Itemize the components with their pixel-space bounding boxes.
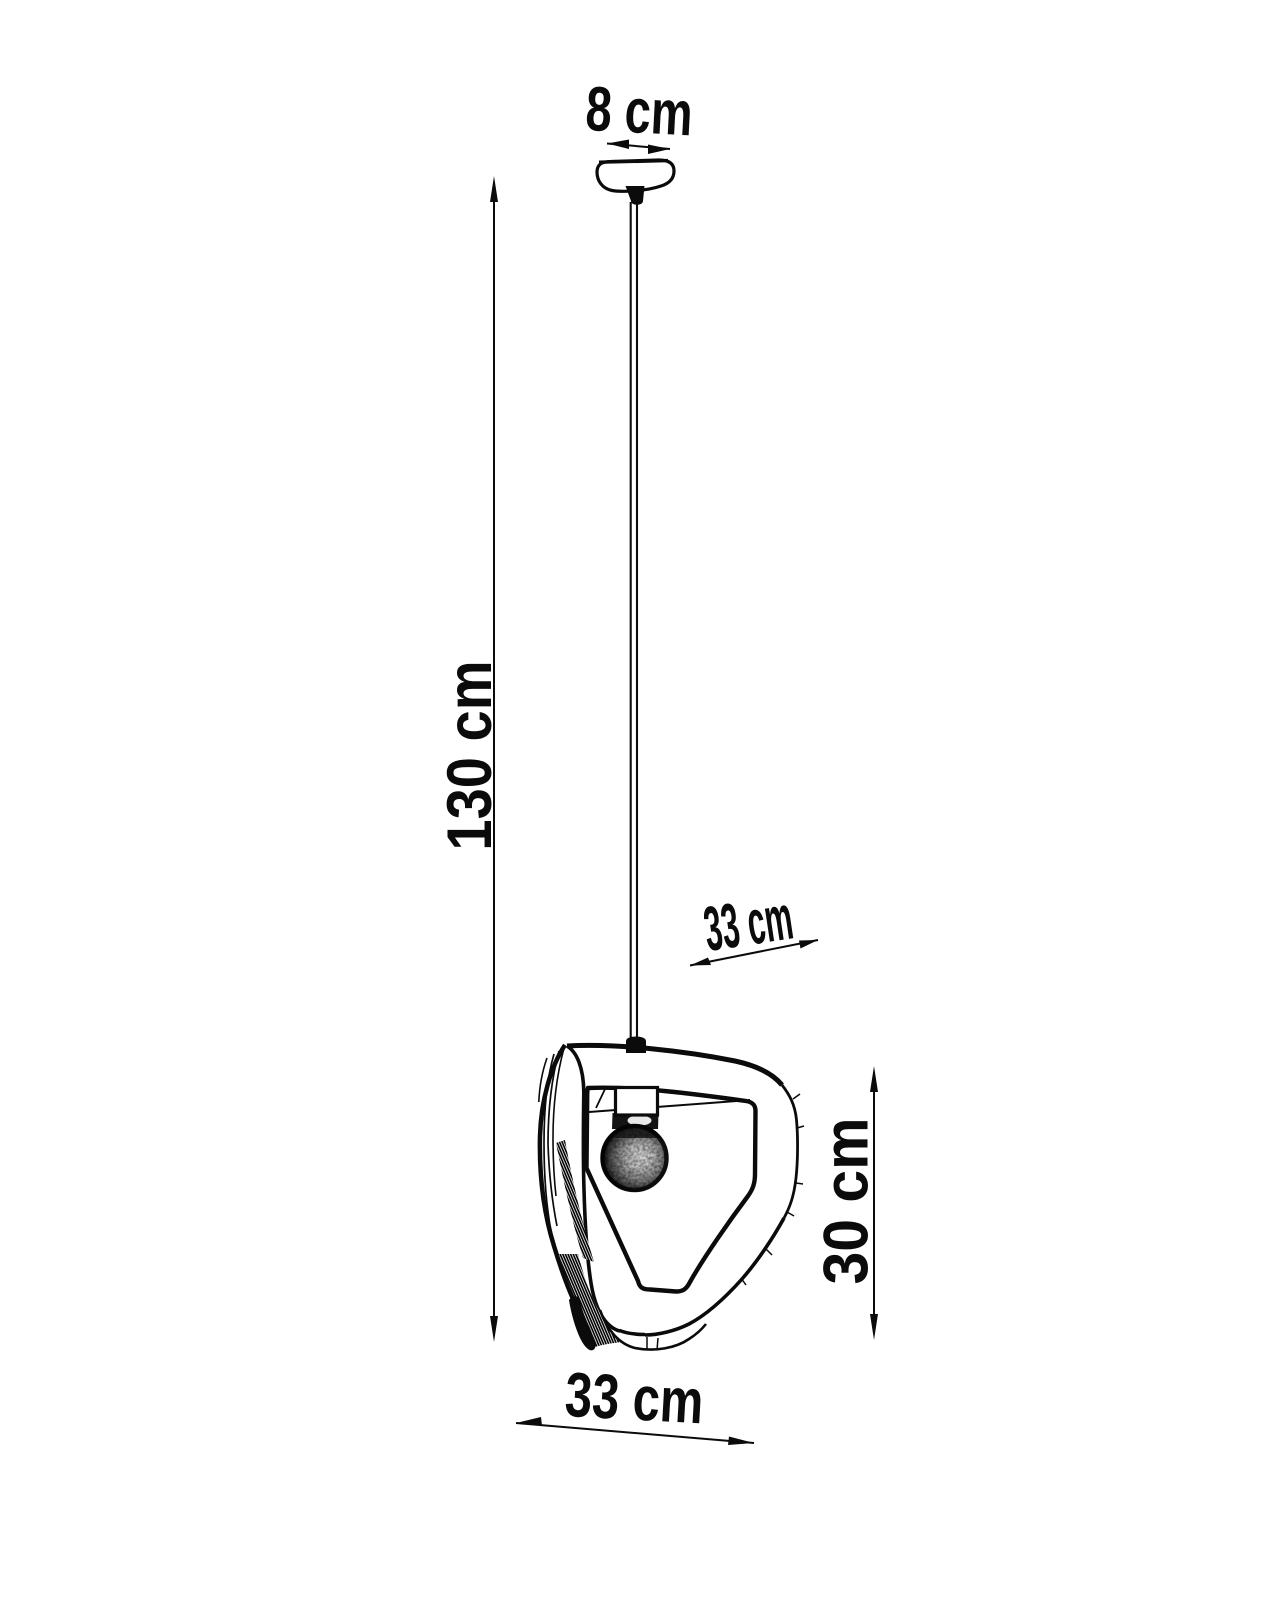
svg-text:130 cm: 130 cm: [434, 660, 505, 850]
svg-text:8 cm: 8 cm: [584, 73, 695, 149]
svg-text:33 cm: 33 cm: [563, 1359, 705, 1437]
svg-text:33 cm: 33 cm: [699, 882, 797, 965]
svg-text:30 cm: 30 cm: [811, 1118, 881, 1285]
